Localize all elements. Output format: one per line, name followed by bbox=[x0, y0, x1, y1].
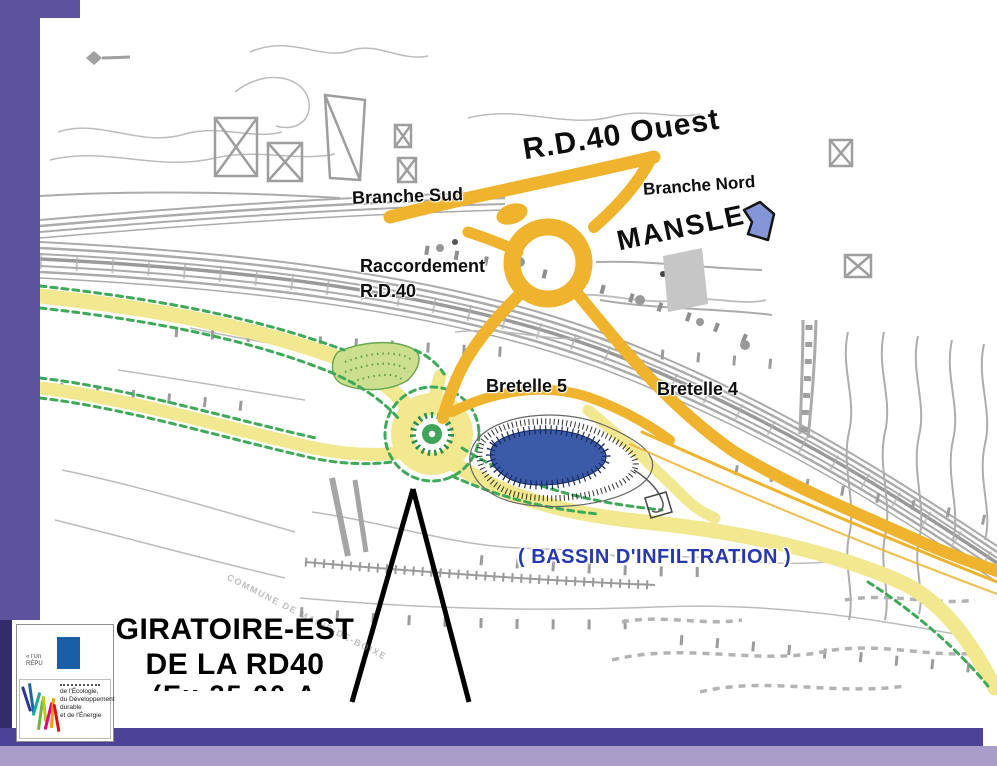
label-bretelle-5: Bretelle 5 bbox=[486, 376, 567, 397]
drawing-title-line1: GIRATOIRE-EST bbox=[104, 612, 366, 647]
drawing-title: GIRATOIRE-EST DE LA RD40 (Ex 25.00.A bbox=[104, 612, 366, 691]
frame-bottom-bar-dark bbox=[0, 728, 983, 746]
ministry-name-line2: du Développement bbox=[60, 696, 110, 704]
label-raccordement: Raccordement R.D.40 bbox=[360, 254, 485, 304]
drawing-title-line3-clipped: (Ex 25.00.A bbox=[104, 682, 366, 691]
ministry-block: de l'Écologie, du Développement durable … bbox=[19, 679, 111, 739]
buildings bbox=[215, 95, 871, 312]
label-bretelle-4: Bretelle 4 bbox=[657, 379, 738, 400]
marianne-strokes-icon bbox=[23, 682, 59, 736]
ministry-name-line4: et de l'Énergie bbox=[60, 712, 110, 720]
ministry-name-line1: de l'Écologie, bbox=[60, 688, 110, 696]
label-branche-sud: Branche Sud bbox=[352, 184, 464, 209]
label-bassin-infiltration: ( BASSIN D'INFILTRATION ) bbox=[518, 546, 791, 569]
ministry-clipped-word bbox=[60, 684, 100, 686]
label-raccordement-line2: R.D.40 bbox=[360, 279, 485, 304]
mansle-building bbox=[663, 248, 708, 312]
existing-terrain-linework bbox=[40, 46, 997, 692]
ministry-name-line3: durable bbox=[60, 704, 110, 712]
frame-left-band bbox=[0, 0, 40, 620]
frame-top-stub bbox=[40, 0, 80, 18]
basin-pond bbox=[490, 430, 606, 485]
slide: R.D.40 Ouest Branche Sud Branche Nord MA… bbox=[0, 0, 997, 766]
logo-motto-line1: « l'Un bbox=[26, 654, 54, 661]
ministry-name: de l'Écologie, du Développement durable … bbox=[60, 688, 110, 720]
logo-motto-line2: RÉPU bbox=[26, 661, 54, 668]
mansle-direction-arrow-icon bbox=[744, 202, 774, 240]
ministry-logo: « l'Un RÉPU de l'Écologie, du Développem… bbox=[16, 624, 114, 742]
logo-motto: « l'Un RÉPU bbox=[26, 654, 54, 668]
infiltration-basin bbox=[470, 415, 672, 518]
drawing-title-line2: DE LA RD40 bbox=[104, 647, 366, 682]
survey-marker-icon bbox=[86, 51, 130, 65]
republique-francaise-logo-icon bbox=[57, 637, 80, 669]
frame-bottom-bar-light bbox=[0, 746, 997, 766]
label-raccordement-line1: Raccordement bbox=[360, 254, 485, 279]
callout-triangle bbox=[352, 489, 469, 702]
